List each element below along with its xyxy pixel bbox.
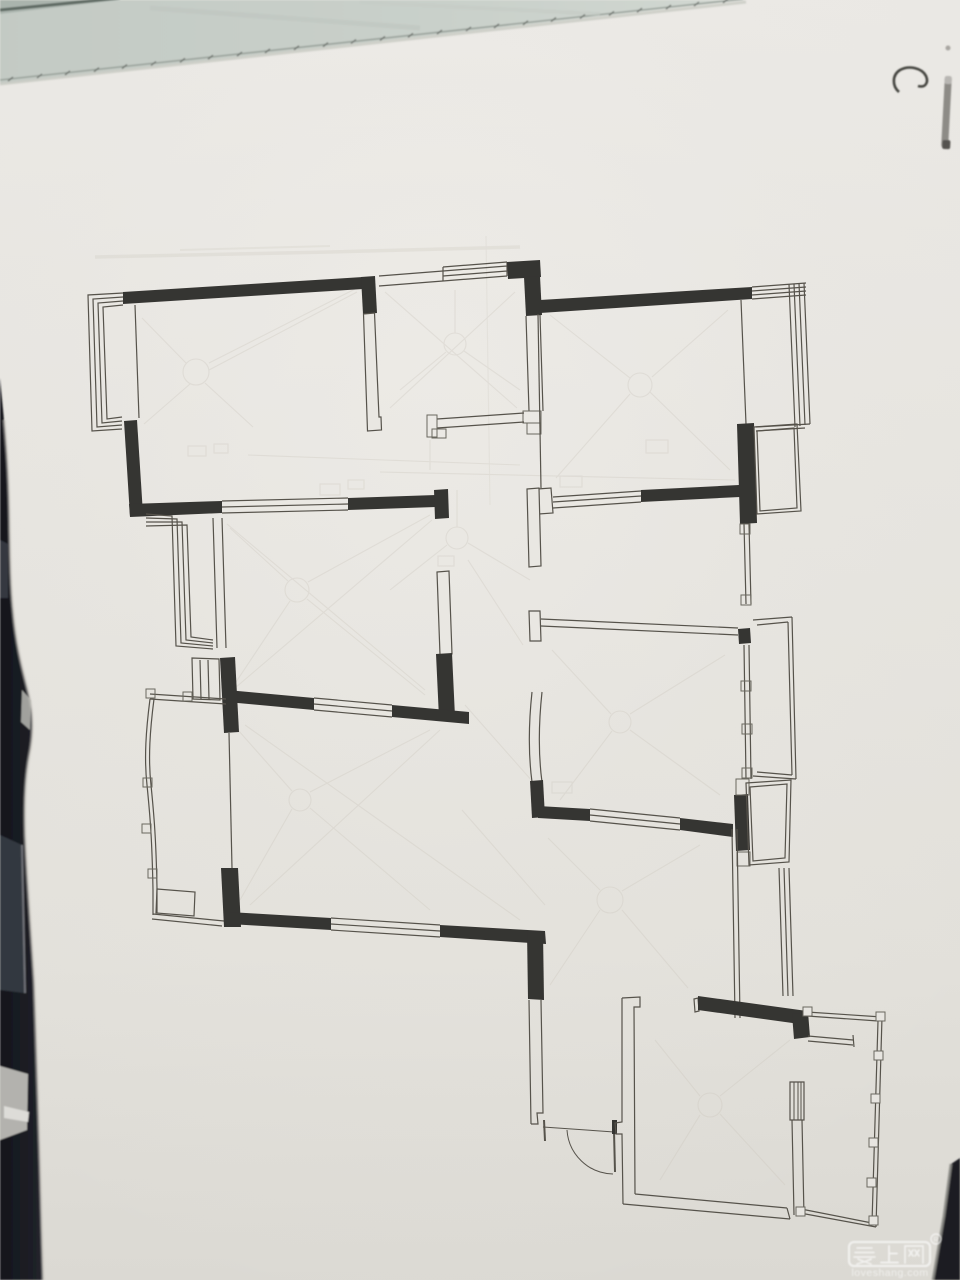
svg-text:loveshang.com: loveshang.com xyxy=(851,1267,928,1279)
svg-text:R: R xyxy=(933,1237,938,1244)
